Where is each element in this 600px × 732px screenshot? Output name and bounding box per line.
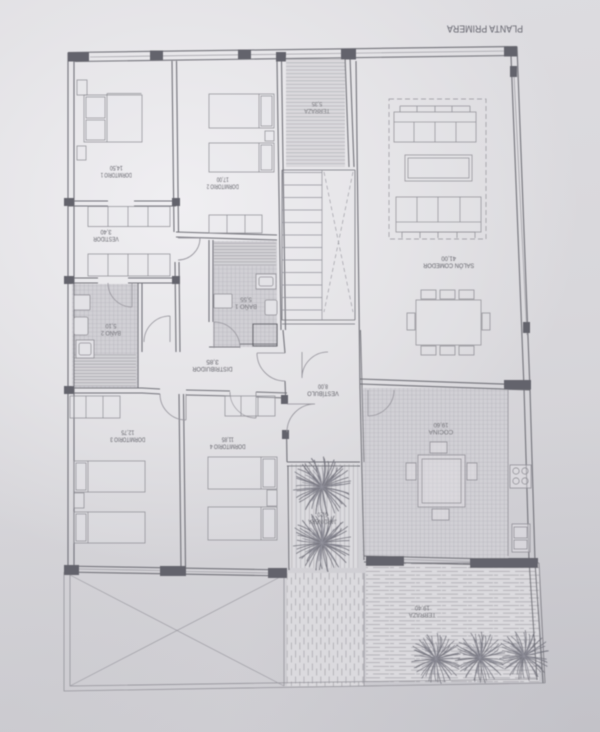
svg-text:5,20: 5,20	[317, 510, 328, 516]
svg-text:DORMITORIO 3: DORMITORIO 3	[110, 436, 145, 443]
svg-text:TERRAZA: TERRAZA	[408, 611, 436, 618]
svg-text:3,85: 3,85	[206, 358, 219, 364]
svg-text:PLANTA PRIMERA: PLANTA PRIMERA	[447, 23, 523, 34]
svg-text:DORMITORIO 4: DORMITORIO 4	[210, 443, 246, 450]
svg-text:5,35: 5,35	[311, 100, 322, 106]
svg-text:VESTÍBULO: VESTÍBULO	[307, 390, 339, 399]
svg-text:BAÑO 1: BAÑO 1	[235, 303, 257, 312]
svg-text:19,60: 19,60	[433, 421, 449, 427]
svg-text:8,00: 8,00	[317, 383, 328, 389]
svg-text:BAÑO 2: BAÑO 2	[101, 329, 121, 338]
svg-text:19,40: 19,40	[414, 604, 430, 610]
svg-text:JARDINERA: JARDINERA	[308, 517, 337, 524]
svg-text:41,00: 41,00	[441, 255, 456, 261]
svg-text:VESTIDOR: VESTIDOR	[93, 235, 119, 242]
svg-text:17,00: 17,00	[216, 176, 229, 182]
svg-text:3,40: 3,40	[100, 228, 112, 234]
svg-text:DORMITORIO 2: DORMITORIO 2	[206, 183, 238, 190]
svg-text:COCINA: COCINA	[428, 428, 453, 435]
svg-text:DORMITORIO 1: DORMITORIO 1	[101, 171, 132, 178]
svg-text:SALÓN COMEDOR: SALÓN COMEDOR	[423, 262, 474, 271]
svg-text:14,50: 14,50	[109, 164, 123, 170]
svg-text:DISTRIBUIDOR: DISTRIBUIDOR	[192, 365, 232, 372]
svg-text:11,85: 11,85	[221, 436, 234, 442]
svg-text:5,10: 5,10	[105, 322, 117, 328]
svg-text:5,55: 5,55	[240, 296, 252, 302]
svg-text:TERRAZA: TERRAZA	[304, 107, 330, 114]
svg-text:12,75: 12,75	[121, 429, 135, 435]
